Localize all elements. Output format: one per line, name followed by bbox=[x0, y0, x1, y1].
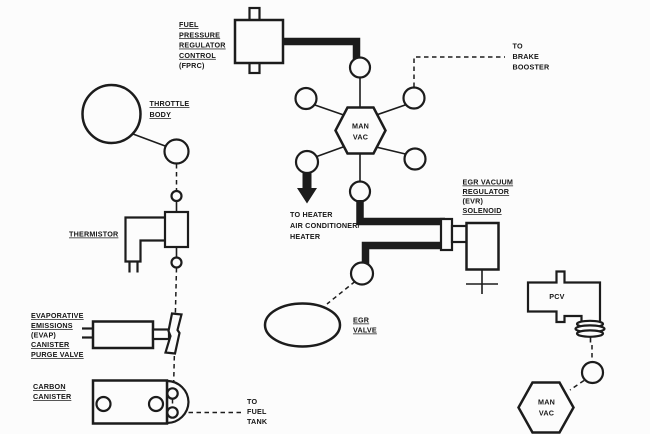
canister-hole bbox=[97, 397, 111, 411]
port-stem-lower-left bbox=[314, 147, 343, 158]
fprc-body bbox=[235, 20, 283, 63]
egr-valve-label-line: EGR bbox=[353, 316, 370, 325]
egr-valve-ellipse bbox=[265, 304, 340, 347]
thermistor-bottom-nipple bbox=[172, 258, 182, 268]
port-circle-evr bbox=[350, 182, 370, 202]
fprc-component bbox=[235, 8, 357, 73]
man-vac-label-line: MAN bbox=[352, 122, 369, 131]
fprc-label-line: PRESSURE bbox=[179, 30, 220, 39]
fprc-label-line: (FPRC) bbox=[179, 61, 205, 70]
thermistor-body bbox=[165, 212, 188, 247]
evap-label-line: EVAPORATIVE bbox=[31, 311, 84, 320]
pcv-port-circle bbox=[582, 362, 603, 383]
canister-hole bbox=[149, 397, 163, 411]
port-circle-brake-booster bbox=[404, 88, 425, 109]
man-vac-lower-label-line: MAN bbox=[538, 398, 555, 407]
evr-connector bbox=[441, 219, 452, 250]
canister-label-line: CANISTER bbox=[33, 392, 72, 401]
egr-valve: EGR VALVE bbox=[265, 282, 377, 347]
evap-label-line: CANISTER bbox=[31, 340, 70, 349]
fuel-tank-label-line: FUEL bbox=[247, 407, 267, 416]
canister-nipple-top bbox=[167, 388, 177, 398]
brake-booster-dashed-line bbox=[414, 57, 505, 87]
throttle-label-line: BODY bbox=[150, 110, 172, 119]
vacuum-routing-diagram: FUEL PRESSURE REGULATOR CONTROL (FPRC) M… bbox=[0, 0, 650, 434]
fprc-label-line: REGULATOR bbox=[179, 41, 226, 50]
canister-label-line: CARBON bbox=[33, 382, 66, 391]
throttle-stem bbox=[133, 134, 167, 147]
port-circle-upper-left bbox=[296, 88, 317, 109]
fuel-tank-label-line: TO bbox=[247, 397, 257, 406]
throttle-body-chain: THROTTLE BODY bbox=[83, 85, 190, 191]
evap-valve-body bbox=[93, 322, 153, 349]
egr-dashed-line bbox=[327, 282, 355, 305]
man-vac-lower-label-line: VAC bbox=[539, 409, 554, 418]
egr-valve-label-line: VALVE bbox=[353, 326, 377, 335]
heater-label-line: TO HEATER bbox=[290, 210, 333, 219]
fprc-label: FUEL PRESSURE REGULATOR CONTROL (FPRC) bbox=[179, 20, 226, 70]
brake-booster-label-line: BRAKE bbox=[513, 52, 540, 61]
throttle-label-line: THROTTLE bbox=[150, 99, 190, 108]
evr-label-line: REGULATOR bbox=[463, 187, 510, 196]
fprc-label-line: FUEL bbox=[179, 20, 199, 29]
pcv-label: PCV bbox=[549, 292, 564, 301]
to-brake-booster-label: TO BRAKE BOOSTER bbox=[513, 42, 551, 72]
man-vac-lower-hub: MAN VAC bbox=[519, 345, 604, 433]
throttle-port-circle bbox=[165, 140, 189, 164]
evr-label-line: (EVR) bbox=[463, 197, 484, 206]
thermistor-bracket bbox=[126, 218, 166, 262]
thermistor-label: THERMISTOR bbox=[69, 230, 119, 239]
evr-label-line: SOLENOID bbox=[463, 206, 502, 215]
evap-label-line: PURGE VALVE bbox=[31, 350, 84, 359]
heater-arrow-head bbox=[297, 188, 317, 204]
pcv-grommet-ring bbox=[577, 330, 603, 336]
man-vac-label-line: VAC bbox=[353, 133, 368, 142]
pcv-component: PCV bbox=[528, 272, 605, 343]
evap-stub bbox=[153, 330, 169, 340]
brake-booster-label-line: BOOSTER bbox=[513, 63, 551, 72]
evap-label: EVAPORATIVE EMISSIONS (EVAP) CANISTER PU… bbox=[31, 311, 84, 359]
hexagon-dashed-link bbox=[570, 381, 584, 391]
canister-nipple-bottom bbox=[167, 407, 177, 417]
heater-label-line: AIR CONDITIONER/ bbox=[290, 221, 360, 230]
brake-booster-label-line: TO bbox=[513, 42, 523, 51]
fprc-label-line: CONTROL bbox=[179, 51, 216, 60]
man-vac-lower-hexagon bbox=[519, 383, 574, 433]
evr-solenoid-label: EGR VACUUM REGULATOR (EVR) SOLENOID bbox=[463, 178, 514, 216]
evr-body bbox=[467, 223, 499, 270]
port-stem-lower-right bbox=[374, 147, 408, 155]
evap-label-line: (EVAP) bbox=[31, 331, 56, 340]
evap-purge-valve bbox=[82, 314, 182, 354]
carbon-canister-component: CARBON CANISTER bbox=[33, 381, 243, 424]
evr-hose-upper bbox=[360, 200, 445, 222]
diagram-page: FUEL PRESSURE REGULATOR CONTROL (FPRC) M… bbox=[0, 0, 650, 434]
heater-label-line: HEATER bbox=[290, 232, 321, 241]
port-circle-heater bbox=[296, 151, 318, 173]
to-fuel-tank-label: TO FUEL TANK bbox=[247, 397, 268, 426]
evr-hose-lower bbox=[366, 246, 453, 265]
thermistor-component: THERMISTOR bbox=[69, 191, 188, 390]
evr-connector-step bbox=[452, 226, 467, 242]
fuel-tank-label-line: TANK bbox=[247, 417, 268, 426]
port-circle-lower-right bbox=[405, 149, 426, 170]
evap-label-line: EMISSIONS bbox=[31, 321, 73, 330]
port-circle-fprc bbox=[350, 58, 370, 78]
fprc-vacuum-hose bbox=[283, 42, 357, 60]
evr-label-line: EGR VACUUM bbox=[463, 178, 514, 187]
thermistor-top-nipple bbox=[172, 191, 182, 201]
throttle-body-circle bbox=[83, 85, 141, 143]
man-vac-hexagon bbox=[336, 108, 386, 154]
heater-outlet: TO HEATER AIR CONDITIONER/ HEATER bbox=[290, 172, 360, 241]
